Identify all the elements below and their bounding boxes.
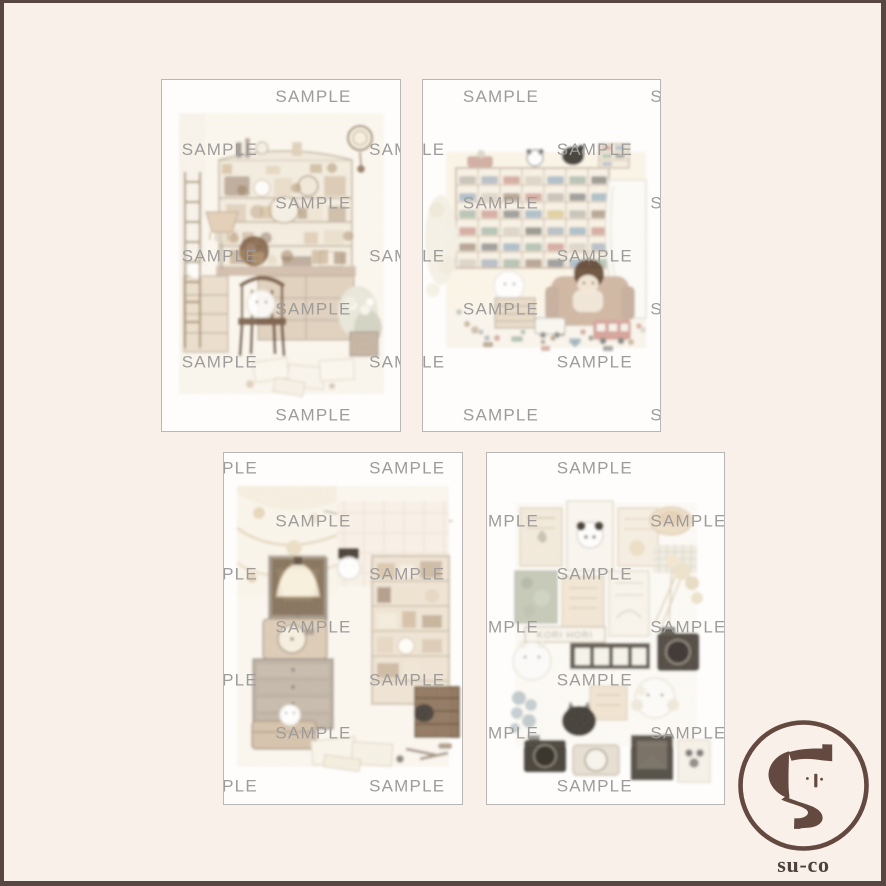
svg-text:SAMPLE: SAMPLE [88,724,164,743]
svg-text:SAMPLE: SAMPLE [88,512,164,531]
svg-text:SAMPLE: SAMPLE [275,512,351,531]
svg-text:SAMPLE: SAMPLE [275,405,351,424]
svg-text:SAMPLE: SAMPLE [88,193,164,212]
svg-text:SAMPLE: SAMPLE [88,87,164,106]
svg-text:SAMPLE: SAMPLE [275,618,351,637]
svg-text:SAMPLE: SAMPLE [557,777,633,796]
svg-text:SAMPLE: SAMPLE [463,724,539,743]
svg-text:SAMPLE: SAMPLE [369,671,445,690]
svg-text:SAMPLE: SAMPLE [463,87,539,106]
svg-text:SAMPLE: SAMPLE [369,459,445,478]
svg-text:SAMPLE: SAMPLE [744,246,820,265]
svg-text:SAMPLE: SAMPLE [463,193,539,212]
svg-text:SAMPLE: SAMPLE [369,777,445,796]
svg-text:SAMPLE: SAMPLE [275,299,351,318]
svg-text:SAMPLE: SAMPLE [275,87,351,106]
svg-text:SAMPLE: SAMPLE [182,352,258,371]
svg-text:SAMPLE: SAMPLE [557,671,633,690]
svg-text:SAMPLE: SAMPLE [463,618,539,637]
svg-text:SAMPLE: SAMPLE [744,352,820,371]
svg-text:SAMPLE: SAMPLE [650,87,726,106]
svg-text:SAMPLE: SAMPLE [650,512,726,531]
svg-text:SAMPLE: SAMPLE [557,246,633,265]
svg-text:SAMPLE: SAMPLE [463,405,539,424]
svg-text:SAMPLE: SAMPLE [182,565,258,584]
svg-text:SAMPLE: SAMPLE [369,352,445,371]
svg-text:SAMPLE: SAMPLE [744,565,820,584]
svg-text:SAMPLE: SAMPLE [182,777,258,796]
svg-text:SAMPLE: SAMPLE [182,671,258,690]
svg-text:SAMPLE: SAMPLE [650,405,726,424]
svg-text:SAMPLE: SAMPLE [650,299,726,318]
svg-text:SAMPLE: SAMPLE [650,724,726,743]
svg-text:SAMPLE: SAMPLE [557,565,633,584]
svg-text:SAMPLE: SAMPLE [650,193,726,212]
svg-text:SAMPLE: SAMPLE [463,299,539,318]
svg-text:SAMPLE: SAMPLE [744,459,820,478]
svg-text:SAMPLE: SAMPLE [182,140,258,159]
svg-text:SAMPLE: SAMPLE [744,140,820,159]
svg-text:SAMPLE: SAMPLE [275,724,351,743]
svg-text:SAMPLE: SAMPLE [557,140,633,159]
svg-text:SAMPLE: SAMPLE [369,140,445,159]
svg-text:SAMPLE: SAMPLE [650,618,726,637]
svg-text:SAMPLE: SAMPLE [88,299,164,318]
svg-text:SAMPLE: SAMPLE [369,246,445,265]
svg-text:SAMPLE: SAMPLE [182,246,258,265]
svg-text:SAMPLE: SAMPLE [744,671,820,690]
svg-text:SAMPLE: SAMPLE [88,405,164,424]
svg-text:su-co: su-co [777,852,829,875]
svg-text:SAMPLE: SAMPLE [88,618,164,637]
svg-text:SAMPLE: SAMPLE [463,512,539,531]
svg-text:SAMPLE: SAMPLE [275,193,351,212]
svg-text:SAMPLE: SAMPLE [182,459,258,478]
svg-text:SAMPLE: SAMPLE [557,352,633,371]
svg-text:SAMPLE: SAMPLE [557,459,633,478]
svg-text:SAMPLE: SAMPLE [369,565,445,584]
